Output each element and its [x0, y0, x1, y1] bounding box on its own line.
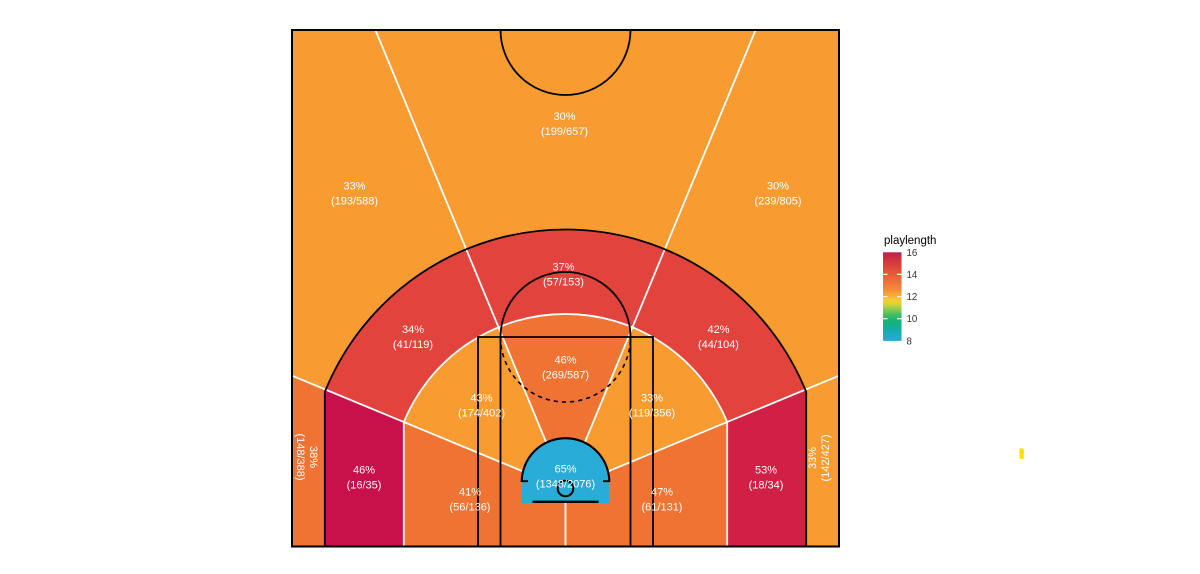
svg-text:(44/104): (44/104) — [698, 339, 739, 351]
svg-text:(199/657): (199/657) — [541, 126, 588, 138]
svg-text:playlength: playlength — [884, 235, 936, 247]
svg-text:33%: 33% — [807, 447, 819, 469]
svg-text:(18/34): (18/34) — [749, 480, 784, 492]
svg-text:16: 16 — [907, 248, 918, 259]
svg-text:30%: 30% — [553, 111, 575, 123]
svg-text:(193/588): (193/588) — [331, 196, 378, 208]
svg-text:(148/388): (148/388) — [294, 433, 306, 480]
svg-text:65%: 65% — [554, 464, 576, 476]
svg-text:30%: 30% — [767, 181, 789, 193]
svg-text:(269/587): (269/587) — [542, 370, 589, 382]
svg-text:47%: 47% — [651, 487, 673, 499]
svg-text:(1348/2076): (1348/2076) — [536, 479, 595, 491]
svg-text:8: 8 — [907, 336, 912, 347]
svg-text:(174/402): (174/402) — [458, 408, 505, 420]
svg-text:14: 14 — [907, 270, 918, 281]
svg-text:(41/119): (41/119) — [393, 339, 433, 351]
svg-text:41%: 41% — [459, 487, 481, 499]
svg-text:46%: 46% — [353, 465, 375, 477]
svg-text:12: 12 — [907, 292, 918, 303]
svg-text:37%: 37% — [552, 262, 574, 274]
svg-text:(56/136): (56/136) — [450, 502, 491, 514]
svg-text:34%: 34% — [402, 324, 424, 336]
svg-text:38%: 38% — [307, 446, 319, 468]
svg-text:(61/131): (61/131) — [642, 502, 683, 514]
svg-text:(239/805): (239/805) — [754, 196, 801, 208]
svg-text:53%: 53% — [755, 465, 777, 477]
svg-text:33%: 33% — [641, 393, 663, 405]
svg-text:46%: 46% — [554, 355, 576, 367]
svg-text:42%: 42% — [707, 324, 729, 336]
svg-text:(16/35): (16/35) — [347, 480, 382, 492]
svg-text:(142/427): (142/427) — [820, 434, 832, 481]
svg-text:33%: 33% — [343, 181, 365, 193]
svg-text:43%: 43% — [470, 393, 492, 405]
svg-text:(119/356): (119/356) — [629, 408, 675, 420]
svg-text:(57/153): (57/153) — [543, 277, 584, 289]
svg-text:10: 10 — [907, 314, 918, 325]
